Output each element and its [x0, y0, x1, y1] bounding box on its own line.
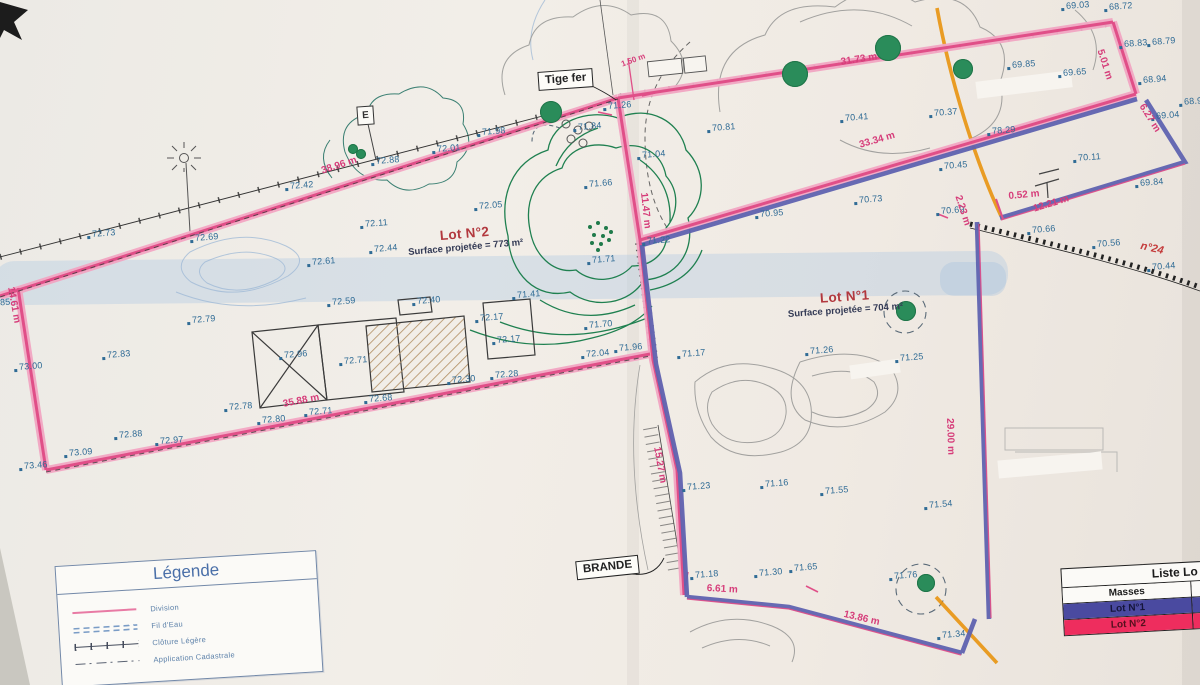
compass-ornament [0, 2, 28, 40]
e-pole-label: E [356, 105, 374, 125]
cloture-symbol [74, 638, 138, 652]
scanned-survey-plan: 68.7269.0368.8368.7968.9468.969.0469.856… [0, 0, 1200, 685]
legend-item-label: Application Cadastrale [153, 650, 235, 664]
legend-item-label: Clôture Légère [152, 635, 206, 647]
pole-symbol [167, 142, 201, 172]
page-fold [627, 0, 639, 685]
tige-fer-label: Tige fer [537, 68, 594, 91]
division-line-symbol [72, 604, 136, 618]
page-corner [0, 548, 30, 685]
fil-deau-symbol [73, 621, 137, 635]
masses-table: Liste Lo Masses Lot N°1 Lot N°2 [1060, 556, 1200, 637]
water-line-highlight-end [940, 262, 1006, 296]
legend-item-label: Fil d'Eau [151, 619, 183, 630]
orange-marks [936, 8, 1001, 663]
legend-box: Légende Division Fil d'Eau Clôture Légèr… [55, 550, 324, 685]
survey-circles [562, 120, 593, 147]
legend-item-label: Division [150, 602, 179, 613]
division-lines [0, 22, 1136, 595]
tree-sketch-epole [323, 87, 468, 190]
cadastrale-symbol [75, 655, 139, 669]
buildings [252, 297, 535, 408]
